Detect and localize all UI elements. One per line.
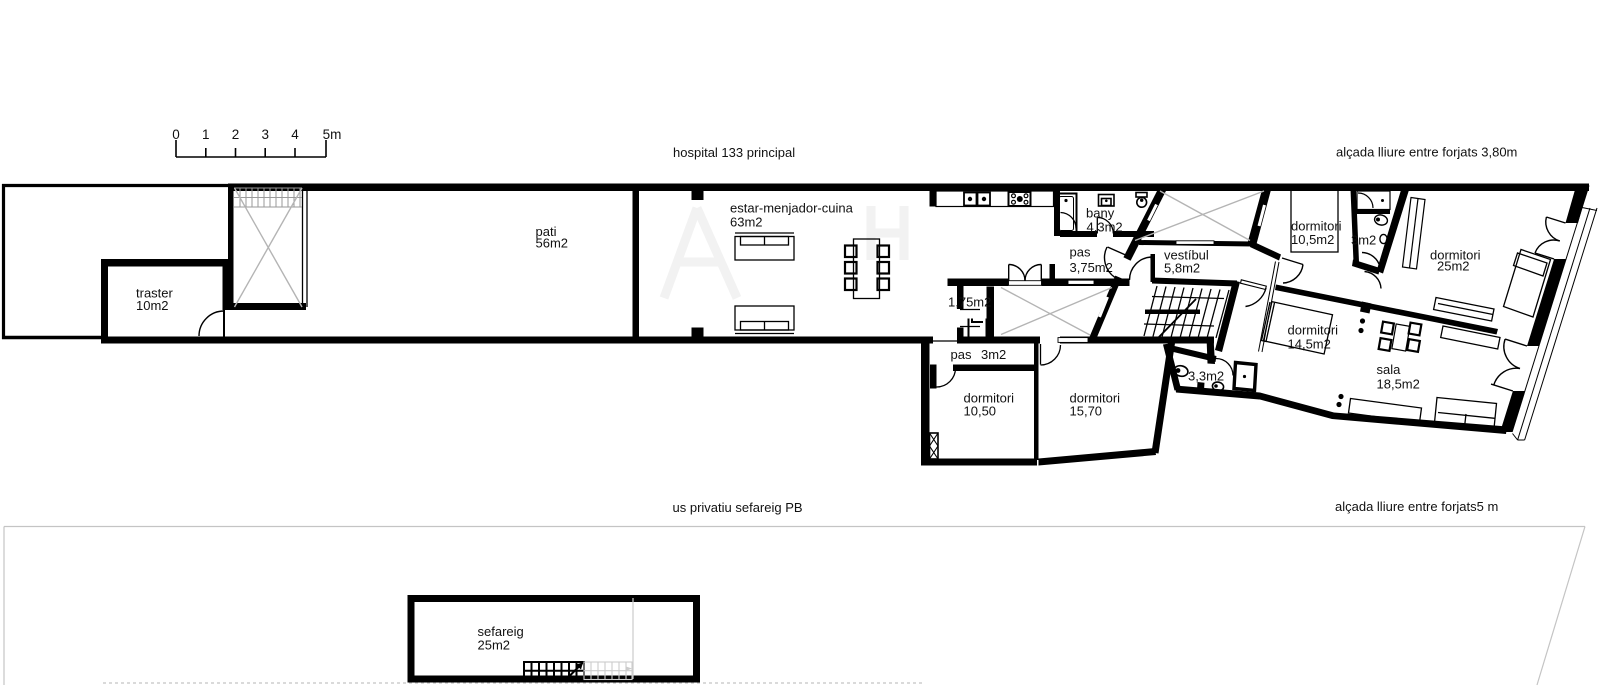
- svg-text:3,3m2: 3,3m2: [1188, 369, 1224, 384]
- svg-text:2: 2: [232, 127, 240, 142]
- svg-text:us privatiu sefareig PB: us privatiu sefareig PB: [673, 500, 803, 515]
- svg-text:5m: 5m: [323, 127, 342, 142]
- svg-text:alçada lliure entre forjats 3,: alçada lliure entre forjats 3,80m: [1336, 145, 1517, 160]
- svg-text:1: 1: [202, 127, 210, 142]
- svg-text:0: 0: [172, 127, 180, 142]
- svg-text:14,5m2: 14,5m2: [1288, 337, 1331, 352]
- svg-text:10,5m2: 10,5m2: [1291, 232, 1334, 247]
- svg-text:15,70: 15,70: [1070, 404, 1103, 419]
- svg-text:alçada lliure entre forjats5 m: alçada lliure entre forjats5 m: [1335, 499, 1498, 514]
- svg-text:pas: pas: [951, 347, 972, 362]
- svg-text:25m2: 25m2: [478, 638, 511, 653]
- svg-text:10,50: 10,50: [964, 404, 997, 419]
- svg-text:56m2: 56m2: [536, 236, 569, 251]
- svg-text:sala: sala: [1377, 362, 1402, 377]
- svg-text:18,5m2: 18,5m2: [1377, 377, 1420, 392]
- svg-text:4: 4: [291, 127, 299, 142]
- svg-text:3: 3: [261, 127, 269, 142]
- svg-text:estar-menjador-cuina: estar-menjador-cuina: [730, 201, 854, 216]
- svg-text:25m2: 25m2: [1437, 259, 1470, 274]
- svg-text:3m2: 3m2: [981, 347, 1006, 362]
- svg-text:1,75m2: 1,75m2: [948, 295, 991, 310]
- svg-text:63m2: 63m2: [730, 215, 763, 230]
- svg-text:10m2: 10m2: [136, 298, 169, 313]
- svg-text:4,3m2: 4,3m2: [1087, 220, 1123, 235]
- svg-text:hospital 133 principal: hospital 133 principal: [673, 145, 795, 160]
- svg-text:5,8m2: 5,8m2: [1164, 261, 1200, 276]
- svg-text:pas: pas: [1070, 245, 1091, 260]
- svg-text:3m2: 3m2: [1351, 233, 1376, 248]
